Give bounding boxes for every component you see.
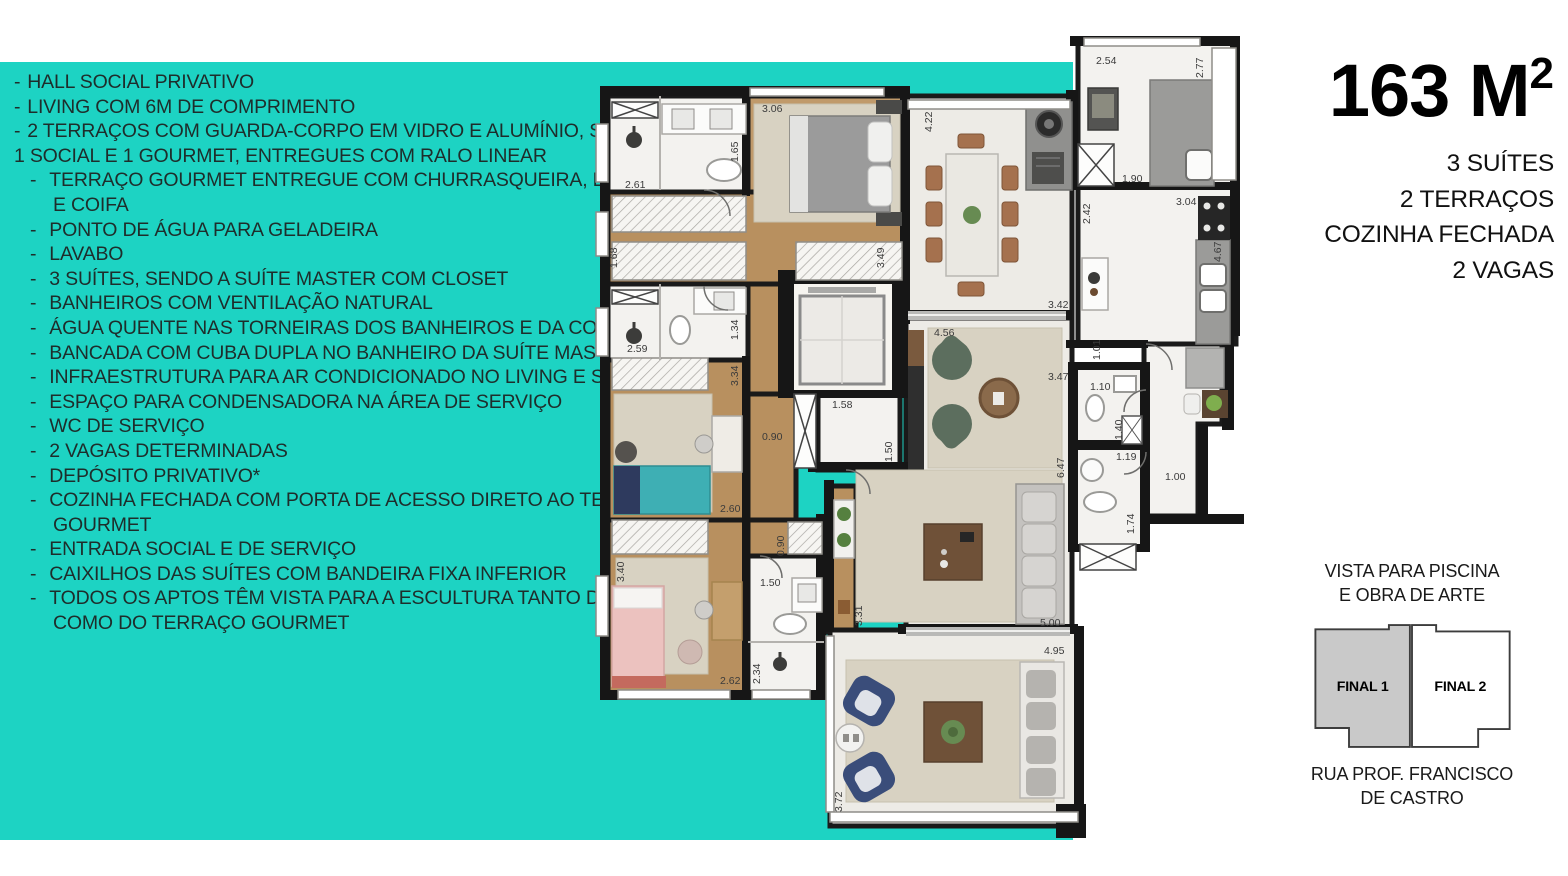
suite-master-furniture — [754, 100, 902, 226]
bullet-dash: - — [30, 341, 36, 366]
dimension-label: 1.00 — [1165, 471, 1186, 483]
bullet-dash: - — [30, 168, 36, 193]
dimension-label: 0.90 — [775, 535, 787, 556]
bullet-dash: - — [30, 488, 36, 513]
dimension-label: 1.90 — [1122, 173, 1143, 185]
bullet-dash: - — [30, 316, 36, 341]
keyplan-final1-label: FINAL 1 — [1337, 679, 1389, 695]
area-title: 163 M2 — [1134, 34, 1554, 131]
dimension-label: 0.90 — [762, 431, 783, 443]
bullet-dash: - — [30, 267, 36, 292]
bullet-dash: - — [30, 537, 36, 562]
feature-line: -WC DE SERVIÇO — [14, 414, 614, 439]
spec-line: COZINHA FECHADA — [1224, 217, 1554, 253]
dimension-label: 3.42 — [1048, 299, 1069, 311]
keyplan-street-label-line2: DE CASTRO — [1272, 787, 1552, 811]
dimension-label: 2.59 — [627, 343, 648, 355]
feature-line: -TERRAÇO GOURMET ENTREGUE COM CHURRASQUE… — [14, 168, 614, 193]
feature-line: COMO DO TERRAÇO GOURMET — [14, 611, 614, 636]
bullet-dash: - — [14, 95, 20, 120]
feature-text: DEPÓSITO PRIVATIVO* — [49, 465, 260, 487]
dimension-label: 3.47 — [1048, 371, 1069, 383]
terraco-social-furniture — [836, 660, 1064, 807]
dimension-label: 1.58 — [832, 399, 853, 411]
kitchen-sink-icon — [1200, 264, 1226, 286]
dimension-label: 3.06 — [762, 103, 783, 115]
dimension-label: 2.42 — [1081, 203, 1093, 224]
feature-text: E COIFA — [53, 194, 129, 216]
dimension-label: 5.00 — [1040, 617, 1061, 629]
feature-text: HALL SOCIAL PRIVATIVO — [27, 71, 254, 93]
feature-text: CAIXILHOS DAS SUÍTES COM BANDEIRA FIXA I… — [49, 563, 566, 585]
dimension-label: 2.54 — [1096, 55, 1117, 67]
tv-console-icon — [908, 366, 924, 470]
feature-line: -2 VAGAS DETERMINADAS — [14, 439, 614, 464]
bullet-dash: - — [30, 586, 36, 611]
dimension-label: 3.31 — [853, 605, 865, 626]
feature-line: -LAVABO — [14, 242, 614, 267]
bullet-dash: - — [30, 242, 36, 267]
page: { "canvas": { "teal": "#1dd3c3", "text_d… — [0, 0, 1568, 876]
dimension-label: 1.34 — [729, 319, 741, 340]
feature-text: GOURMET — [53, 514, 151, 536]
feature-text: COMO DO TERRAÇO GOURMET — [53, 612, 349, 634]
feature-line: GOURMET — [14, 513, 614, 538]
feature-text: TERRAÇO GOURMET ENTREGUE COM CHURRASQUEI… — [49, 169, 685, 191]
feature-line: E COIFA — [14, 193, 614, 218]
feature-text: BANCADA COM CUBA DUPLA NO BANHEIRO DA SU… — [49, 342, 634, 364]
bullet-dash: - — [30, 390, 36, 415]
floor-plan-svg: 2.611.653.061.683.492.591.343.344.222.54… — [595, 5, 1245, 850]
dimension-label: 3.72 — [833, 791, 845, 812]
bullet-dash: - — [30, 365, 36, 390]
feature-text: 3 SUÍTES, SENDO A SUÍTE MASTER COM CLOSE… — [49, 268, 508, 290]
dimension-label: 4.22 — [923, 111, 935, 132]
feature-line: -COZINHA FECHADA COM PORTA DE ACESSO DIR… — [14, 488, 614, 513]
feature-line: -ENTRADA SOCIAL E DE SERVIÇO — [14, 537, 614, 562]
feature-line: -2 TERRAÇOS COM GUARDA-CORPO EM VIDRO E … — [14, 119, 614, 144]
feature-text: PONTO DE ÁGUA PARA GELADEIRA — [49, 219, 378, 241]
dimension-label: 1.40 — [1113, 419, 1125, 440]
dimension-label: 4.56 — [934, 327, 955, 339]
dimension-label: 1.19 — [1116, 451, 1137, 463]
keyplan-final2-label: FINAL 2 — [1434, 679, 1486, 695]
spec-line: 2 TERRAÇOS — [1224, 182, 1554, 218]
feature-text: 1 SOCIAL E 1 GOURMET, ENTREGUES COM RALO… — [14, 145, 547, 167]
dimension-label: 2.34 — [751, 663, 763, 684]
keyplan-view-label-line1: VISTA PARA PISCINA — [1272, 560, 1552, 584]
feature-text: ESPAÇO PARA CONDENSADORA NA ÁREA DE SERV… — [49, 391, 562, 413]
feature-text: TODOS OS APTOS TÊM VISTA PARA A ESCULTUR… — [49, 587, 673, 609]
dimension-label: 3.34 — [729, 365, 741, 386]
feature-line: -DEPÓSITO PRIVATIVO* — [14, 464, 614, 489]
feature-line: -INFRAESTRUTURA PARA AR CONDICIONADO NO … — [14, 365, 614, 390]
spec-list: 3 SUÍTES2 TERRAÇOSCOZINHA FECHADA2 VAGAS — [1224, 146, 1554, 288]
dimension-label: 6.47 — [1055, 457, 1067, 478]
area-superscript: 2 — [1530, 49, 1554, 98]
dimension-label: 3.04 — [1176, 196, 1197, 208]
dimension-label: 1.01 — [1091, 339, 1103, 360]
bullet-dash: - — [30, 414, 36, 439]
dimension-label: 4.67 — [1212, 241, 1224, 262]
feature-line: -CAIXILHOS DAS SUÍTES COM BANDEIRA FIXA … — [14, 562, 614, 587]
keyplan-view-label-line2: E OBRA DE ARTE — [1272, 584, 1552, 608]
feature-line: -TODOS OS APTOS TÊM VISTA PARA A ESCULTU… — [14, 586, 614, 611]
feature-text: WC DE SERVIÇO — [49, 415, 204, 437]
feature-line: -BANCADA COM CUBA DUPLA NO BANHEIRO DA S… — [14, 341, 614, 366]
dimension-label: 1.65 — [729, 141, 741, 162]
feature-line: -BANHEIROS COM VENTILAÇÃO NATURAL — [14, 291, 614, 316]
features-list: -HALL SOCIAL PRIVATIVO-LIVING COM 6M DE … — [14, 70, 614, 636]
feature-line: 1 SOCIAL E 1 GOURMET, ENTREGUES COM RALO… — [14, 144, 614, 169]
feature-line: -ÁGUA QUENTE NAS TORNEIRAS DOS BANHEIROS… — [14, 316, 614, 341]
feature-text: ENTRADA SOCIAL E DE SERVIÇO — [49, 538, 356, 560]
bullet-dash: - — [30, 291, 36, 316]
dimension-label: 2.61 — [625, 179, 646, 191]
dimension-label: 4.95 — [1044, 645, 1065, 657]
feature-text: BANHEIROS COM VENTILAÇÃO NATURAL — [49, 292, 432, 314]
bullet-dash: - — [14, 119, 20, 144]
dimension-label: 3.49 — [875, 247, 887, 268]
feature-line: -LIVING COM 6M DE COMPRIMENTO — [14, 95, 614, 120]
bullet-dash: - — [30, 562, 36, 587]
feature-line: -3 SUÍTES, SENDO A SUÍTE MASTER COM CLOS… — [14, 267, 614, 292]
laundry-sink-icon — [1186, 150, 1212, 180]
spec-line: 3 SUÍTES — [1224, 146, 1554, 182]
feature-text: LAVABO — [49, 243, 123, 265]
feature-text: COZINHA FECHADA COM PORTA DE ACESSO DIRE… — [49, 489, 673, 511]
floor-plan: 2.611.653.061.683.492.591.343.344.222.54… — [595, 5, 1245, 850]
dimension-label: 1.50 — [760, 577, 781, 589]
keyplan-section: VISTA PARA PISCINA E OBRA DE ARTE FINAL … — [1272, 560, 1552, 810]
feature-line: -PONTO DE ÁGUA PARA GELADEIRA — [14, 218, 614, 243]
bullet-dash: - — [30, 439, 36, 464]
dimension-label: 1.10 — [1090, 381, 1111, 393]
dimension-label: 1.74 — [1125, 513, 1137, 534]
feature-text: LIVING COM 6M DE COMPRIMENTO — [27, 96, 355, 118]
feature-line: -ESPAÇO PARA CONDENSADORA NA ÁREA DE SER… — [14, 390, 614, 415]
feature-text: 2 TERRAÇOS COM GUARDA-CORPO EM VIDRO E A… — [27, 120, 657, 142]
bullet-dash: - — [30, 464, 36, 489]
keyplan-street-label-line1: RUA PROF. FRANCISCO — [1272, 763, 1552, 787]
keyplan-diagram: FINAL 1 FINAL 2 — [1307, 615, 1517, 757]
elevator — [794, 284, 892, 390]
dimension-label: 3.40 — [615, 561, 627, 582]
dimension-label: 1.50 — [883, 441, 895, 462]
area-value: 163 M — [1329, 49, 1530, 132]
dimension-label: 1.68 — [608, 247, 620, 268]
dimension-label: 2.60 — [720, 503, 741, 515]
feature-text: ÁGUA QUENTE NAS TORNEIRAS DOS BANHEIROS … — [49, 317, 654, 339]
bullet-dash: - — [30, 218, 36, 243]
bullet-dash: - — [14, 70, 20, 95]
feature-line: -HALL SOCIAL PRIVATIVO — [14, 70, 614, 95]
feature-text: INFRAESTRUTURA PARA AR CONDICIONADO NO L… — [49, 366, 660, 388]
feature-text: 2 VAGAS DETERMINADAS — [49, 440, 287, 462]
spec-line: 2 VAGAS — [1224, 253, 1554, 289]
dimension-label: 2.62 — [720, 675, 741, 687]
